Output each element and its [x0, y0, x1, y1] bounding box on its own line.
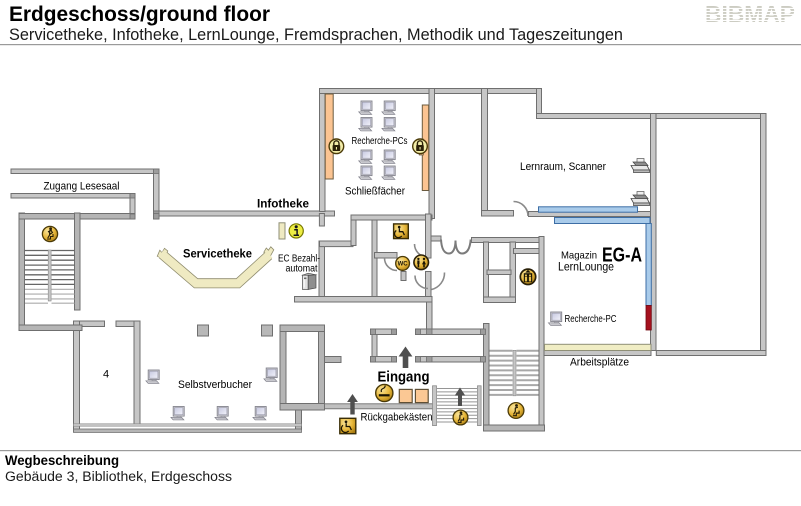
svg-text:Zugang Lesesaal: Zugang Lesesaal — [44, 181, 120, 193]
svg-text:Recherche-PCs: Recherche-PCs — [352, 135, 408, 147]
svg-text:Infotheke: Infotheke — [257, 199, 309, 211]
svg-text:Wegbeschreibung: Wegbeschreibung — [5, 453, 119, 468]
svg-text:automat: automat — [286, 264, 318, 275]
svg-text:Eingang: Eingang — [378, 370, 430, 386]
svg-text:Schließfächer: Schließfächer — [345, 186, 405, 198]
svg-text:Recherche-PC: Recherche-PC — [565, 313, 617, 325]
svg-text:Rückgabekästen: Rückgabekästen — [361, 412, 433, 424]
svg-text:Erdgeschoss/ground floor: Erdgeschoss/ground floor — [9, 3, 270, 26]
svg-text:Servicetheke: Servicetheke — [183, 247, 252, 261]
svg-text:Servicetheke, Infotheke, LernL: Servicetheke, Infotheke, LernLounge, Fre… — [9, 26, 623, 44]
svg-text:4: 4 — [103, 369, 109, 381]
svg-text:Gebäude 3, Bibliothek, Erdgesc: Gebäude 3, Bibliothek, Erdgeschoss — [5, 468, 232, 484]
svg-text:Arbeitsplätze: Arbeitsplätze — [570, 357, 629, 369]
svg-text:BIBMAP: BIBMAP — [705, 1, 795, 27]
svg-text:Magazin: Magazin — [561, 250, 597, 262]
svg-text:Lernraum, Scanner: Lernraum, Scanner — [520, 161, 606, 173]
svg-text:Selbstverbucher: Selbstverbucher — [178, 379, 252, 391]
svg-text:LernLounge: LernLounge — [558, 262, 614, 274]
svg-text:WC: WC — [398, 261, 408, 268]
